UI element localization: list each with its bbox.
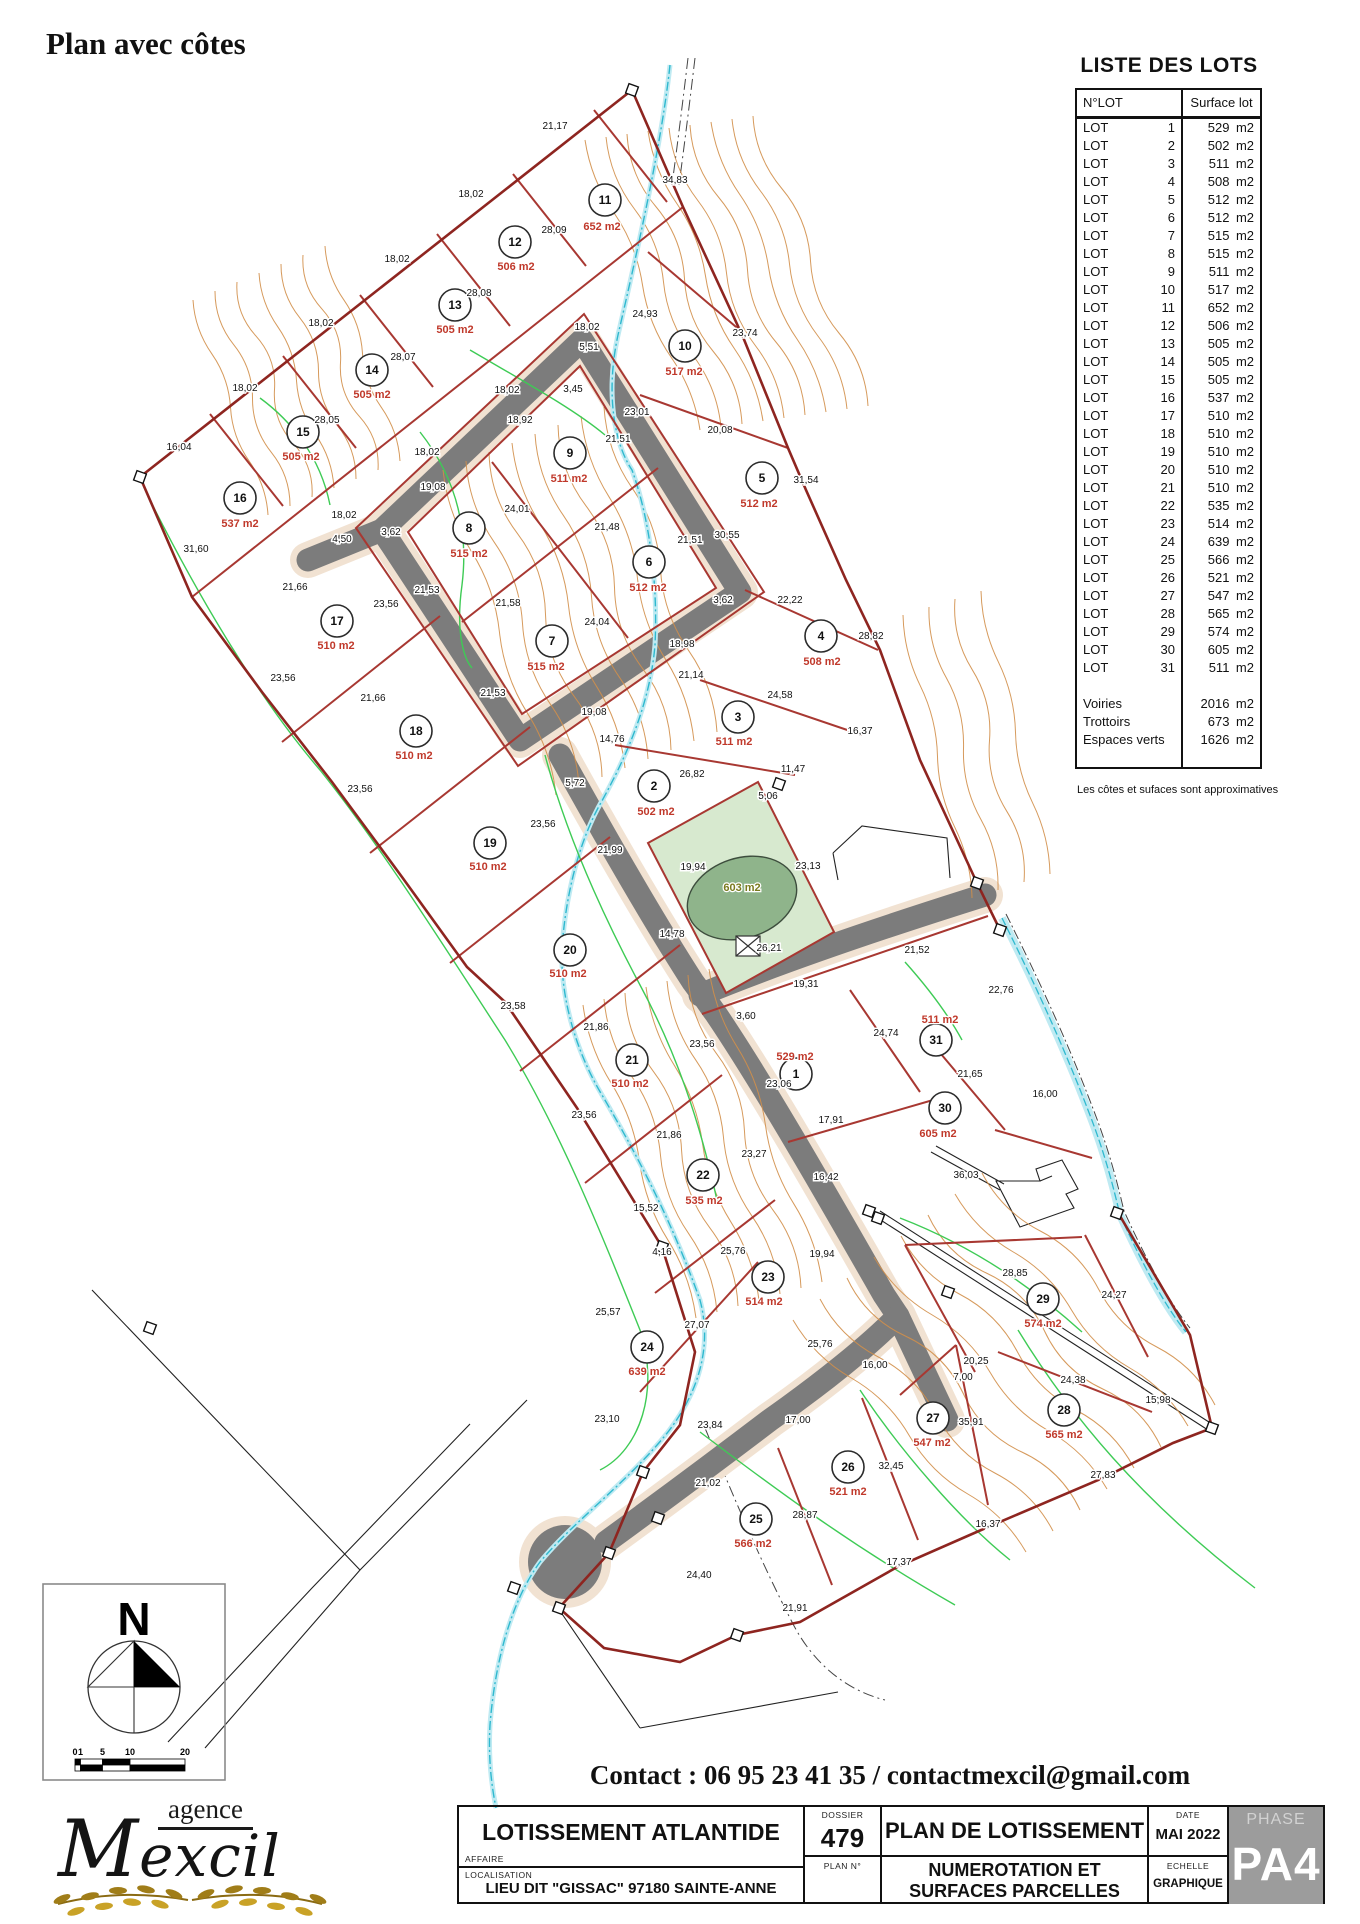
- dimension-label: 23,10: [594, 1414, 619, 1425]
- dimension-label: 34,83: [662, 175, 687, 186]
- dimension-label: 25,76: [807, 1339, 832, 1350]
- table-row: LOT8515 m2: [1076, 245, 1261, 263]
- dimension-label: 24,27: [1101, 1290, 1126, 1301]
- dimension-label: 4,16: [652, 1247, 672, 1258]
- dimension-label: 16,00: [862, 1360, 887, 1371]
- lot-marker: 22535 m2: [685, 1159, 722, 1207]
- contour-line: [982, 1173, 1215, 1405]
- dimension-label: 16,00: [1032, 1089, 1057, 1100]
- dimension-label: 3,60: [736, 1011, 756, 1022]
- dimension-label: 24,93: [632, 309, 657, 320]
- dimension-label: 21,86: [583, 1022, 608, 1033]
- dimension-label: 27,07: [684, 1320, 709, 1331]
- dimension-label: 5,51: [579, 342, 599, 353]
- lot-area-label: 506 m2: [497, 261, 534, 273]
- dimension-label: 21,51: [605, 434, 630, 445]
- lots-table-title: LISTE DES LOTS: [1075, 54, 1263, 78]
- affaire-label: AFFAIRE: [465, 1854, 504, 1864]
- contour-line: [325, 246, 400, 461]
- lot-number: 29: [1036, 1292, 1050, 1306]
- lot-marker: 16537 m2: [221, 482, 258, 530]
- dimension-label: 24,74: [873, 1028, 898, 1039]
- lot-number: 11: [599, 193, 612, 207]
- echelle-value: GRAPHIQUE: [1149, 1878, 1227, 1890]
- laurel-leaf: [224, 1884, 243, 1895]
- lot-number: 17: [330, 614, 344, 628]
- lot-area-label: 652 m2: [583, 221, 620, 233]
- lot-number: 14: [365, 363, 379, 377]
- dimension-label: 3,62: [381, 527, 401, 538]
- lot-area-label: 508 m2: [803, 656, 840, 668]
- affaire-value: LOTISSEMENT ATLANTIDE: [459, 1819, 803, 1846]
- lot-area-label: 529 m2: [776, 1051, 813, 1063]
- dimension-label: 19,31: [793, 979, 818, 990]
- dimension-label: 24,40: [686, 1570, 711, 1581]
- lot-area-label: 535 m2: [685, 1195, 722, 1207]
- lot-area-label: 566 m2: [734, 1538, 771, 1550]
- dimension-label: 31,60: [183, 544, 208, 555]
- scale-tick: 1: [78, 1747, 83, 1757]
- dimension-label: 26,21: [756, 943, 781, 954]
- dimension-label: 25,76: [720, 1246, 745, 1257]
- title-block-localisation: LOCALISATION LIEU DIT "GISSAC" 97180 SAI…: [459, 1868, 805, 1904]
- laurel-leaf: [109, 1887, 127, 1894]
- lot-number: 22: [696, 1168, 710, 1182]
- table-row: LOT19510 m2: [1076, 443, 1261, 461]
- dimension-label: 18,02: [494, 385, 519, 396]
- scale-tick: 10: [125, 1747, 135, 1757]
- table-row: LOT20510 m2: [1076, 461, 1261, 479]
- table-row: Trottoirs673 m2: [1076, 713, 1261, 731]
- boundary-marker: [773, 778, 786, 791]
- contour-line: [981, 591, 1050, 874]
- lot-marker: 17510 m2: [317, 605, 354, 652]
- dimension-label: 21,51: [677, 535, 702, 546]
- table-row: LOT4508 m2: [1076, 173, 1261, 191]
- logo-agence: agence: [158, 1794, 253, 1830]
- dimension-label: 4,50: [332, 534, 352, 545]
- lot-marker: 6512 m2: [629, 546, 666, 594]
- lot-area-label: 515 m2: [450, 548, 487, 560]
- agency-logo: Mexcil agence: [40, 1786, 340, 1922]
- lot-marker: 30605 m2: [919, 1092, 961, 1140]
- title-block: LOTISSEMENT ATLANTIDE AFFAIRE LOCALISATI…: [457, 1805, 1325, 1904]
- table-row: LOT31511 m2: [1076, 659, 1261, 677]
- lot-area-label: 505 m2: [436, 324, 473, 336]
- lot-marker: 24639 m2: [628, 1331, 665, 1378]
- lot-marker: 26521 m2: [829, 1451, 866, 1498]
- scale-tick: 20: [180, 1747, 190, 1757]
- table-row: LOT5512 m2: [1076, 191, 1261, 209]
- dimension-label: 16,37: [975, 1519, 1000, 1530]
- lot-area-label: 512 m2: [629, 582, 666, 594]
- lot-marker: 23514 m2: [745, 1261, 784, 1308]
- dimension-label: 18,02: [458, 189, 483, 200]
- dimension-label: 28,09: [541, 225, 566, 236]
- dimension-label: 18,02: [331, 510, 356, 521]
- table-row: LOT6512 m2: [1076, 209, 1261, 227]
- lot-marker: 11652 m2: [583, 184, 621, 233]
- dimension-label: 18,02: [574, 322, 599, 333]
- contact-line: Contact : 06 95 23 41 35 / contactmexcil…: [500, 1760, 1280, 1791]
- table-row: LOT28565 m2: [1076, 605, 1261, 623]
- date-label: DATE: [1149, 1810, 1227, 1820]
- table-row: LOT26521 m2: [1076, 569, 1261, 587]
- dimension-label: 5,72: [565, 778, 585, 789]
- lot-number: 12: [508, 235, 522, 249]
- laurel-leaf: [294, 1905, 313, 1917]
- lot-number: 4: [818, 629, 825, 643]
- dimension-label: 3,62: [713, 595, 733, 606]
- north-compass: N 0151020: [42, 1583, 226, 1781]
- contour-line: [732, 119, 847, 409]
- dimension-label: 35,91: [958, 1417, 983, 1428]
- title-block-plan-title: PLAN DE LOTISSEMENT: [882, 1807, 1149, 1857]
- title-block-subtitle: NUMEROTATION ET SURFACES PARCELLES: [882, 1857, 1149, 1904]
- dimension-label: 21,53: [480, 688, 505, 699]
- dimension-label: 11,47: [781, 764, 806, 775]
- dimension-label: 15,52: [633, 1203, 658, 1214]
- lot-area-label: 505 m2: [353, 389, 390, 401]
- boundary-marker: [731, 1629, 744, 1642]
- col-header-lot: N°LOT: [1076, 89, 1182, 118]
- dimension-label: 21,58: [495, 598, 520, 609]
- lot-area-label: 517 m2: [665, 366, 702, 378]
- dimension-label: 21,91: [782, 1603, 807, 1614]
- table-row: LOT14505 m2: [1076, 353, 1261, 371]
- dimension-label: 23,13: [795, 861, 820, 872]
- lot-area-label: 510 m2: [469, 861, 506, 873]
- dimension-label: 18,98: [669, 639, 694, 650]
- dimension-label: 16,37: [847, 726, 872, 737]
- dimension-label: 23,56: [373, 599, 398, 610]
- dimension-label: 19,08: [420, 482, 445, 493]
- laurel-leaf: [239, 1898, 258, 1907]
- lot-area-label: 512 m2: [740, 498, 777, 510]
- lot-area-label: 574 m2: [1024, 1318, 1061, 1330]
- dimension-label: 16,42: [813, 1172, 838, 1183]
- lot-number: 16: [233, 491, 247, 505]
- dimension-label: 18,02: [414, 447, 439, 458]
- plan-title-value: PLAN DE LOTISSEMENT: [882, 1818, 1147, 1844]
- dimension-label: 36,03: [953, 1170, 978, 1181]
- lot-area-label: 547 m2: [913, 1437, 950, 1449]
- lot-number: 25: [749, 1512, 763, 1526]
- lot-number: 9: [567, 446, 574, 460]
- lot-area-label: 639 m2: [628, 1366, 665, 1378]
- lot-marker: 9511 m2: [551, 437, 588, 485]
- lot-area-label: 515 m2: [527, 661, 564, 673]
- dimension-label: 7,00: [953, 1372, 973, 1383]
- boundary-marker: [144, 1322, 157, 1335]
- scale-tick: 5: [100, 1747, 105, 1757]
- dimension-label: 23,56: [270, 673, 295, 684]
- dimension-label: 28,05: [314, 415, 339, 426]
- lot-number: 20: [563, 943, 577, 957]
- lot-number: 27: [926, 1411, 940, 1425]
- table-row: LOT2502 m2: [1076, 137, 1261, 155]
- table-row: LOT12506 m2: [1076, 317, 1261, 335]
- lot-number: 21: [625, 1053, 639, 1067]
- table-row: LOT27547 m2: [1076, 587, 1261, 605]
- dimension-label: 21,48: [594, 522, 619, 533]
- north-label: N: [117, 1593, 150, 1645]
- table-row: LOT23514 m2: [1076, 515, 1261, 533]
- dimension-label: 32,45: [878, 1461, 903, 1472]
- dimension-label: 19,94: [680, 862, 705, 873]
- dimension-label: 21,02: [695, 1478, 720, 1489]
- dimension-label: 17,91: [818, 1115, 843, 1126]
- lots-table: N°LOT Surface lot LOT1529 m2LOT2502 m2LO…: [1075, 88, 1262, 769]
- dimension-label: 28,87: [792, 1510, 817, 1521]
- table-row: LOT25566 m2: [1076, 551, 1261, 569]
- contour-line: [711, 122, 826, 412]
- lot-marker: 29574 m2: [1024, 1283, 1061, 1330]
- laurel-leaf: [150, 1898, 169, 1910]
- subtitle-line1: NUMEROTATION ET: [928, 1860, 1100, 1880]
- dimension-label: 16,04: [166, 442, 191, 453]
- table-row: LOT21510 m2: [1076, 479, 1261, 497]
- lot-markers: 1529 m22502 m23511 m24508 m25512 m26512 …: [221, 184, 1082, 1550]
- lot-marker: 12506 m2: [497, 226, 534, 273]
- lot-marker: 14505 m2: [353, 354, 390, 401]
- dimension-label: 19,08: [581, 707, 606, 718]
- dimension-label: 5,06: [758, 791, 778, 802]
- table-row: LOT18510 m2: [1076, 425, 1261, 443]
- dimension-label: 21,14: [678, 670, 703, 681]
- plan-page: Plan avec côtes: [0, 0, 1360, 1924]
- contour-line: [281, 264, 356, 479]
- dimension-label: 27,83: [1090, 1470, 1115, 1481]
- dimension-label: 15,98: [1145, 1395, 1170, 1406]
- lot-number: 13: [448, 298, 462, 312]
- lot-area-label: 514 m2: [745, 1296, 782, 1308]
- lot-number: 15: [296, 425, 310, 439]
- lot-area-label: 505 m2: [282, 451, 319, 463]
- lot-marker: 18510 m2: [395, 715, 432, 762]
- lot-marker: 19510 m2: [469, 827, 506, 873]
- lot-area-label: 511 m2: [716, 736, 753, 748]
- lot-number: 30: [938, 1101, 952, 1115]
- dimension-label: 28,07: [390, 352, 415, 363]
- dimension-label: 23,58: [500, 1001, 525, 1012]
- title-block-dossier: DOSSIER 479: [805, 1807, 882, 1857]
- dimension-label: 17,00: [785, 1415, 810, 1426]
- dimension-label: 26,82: [679, 769, 704, 780]
- dimension-label: 3,45: [563, 384, 583, 395]
- dimension-label: 21,66: [282, 582, 307, 593]
- lot-number: 6: [646, 555, 653, 569]
- dimension-label: 23,56: [689, 1039, 714, 1050]
- table-row: [1076, 749, 1261, 768]
- laurel-leaf: [95, 1902, 114, 1911]
- table-row: Voiries2016 m2: [1076, 695, 1261, 713]
- laurel-leaf: [123, 1898, 142, 1907]
- dimension-label: 28,85: [1002, 1268, 1027, 1279]
- dimension-label: 21,53: [414, 585, 439, 596]
- dimension-label: 18,92: [507, 415, 532, 426]
- table-row: LOT30605 m2: [1076, 641, 1261, 659]
- subtitle-line2: SURFACES PARCELLES: [909, 1881, 1120, 1901]
- dimension-label: 20,08: [707, 425, 732, 436]
- dimension-label: 22,22: [777, 595, 802, 606]
- dimension-label: 17,37: [886, 1557, 911, 1568]
- lot-number: 2: [651, 779, 658, 793]
- dimension-label: 31,54: [793, 475, 818, 486]
- lot-area-label: 511 m2: [551, 473, 588, 485]
- dimension-label: 20,25: [963, 1356, 988, 1367]
- date-value: MAI 2022: [1149, 1826, 1227, 1843]
- dimension-label: 14,76: [599, 734, 624, 745]
- table-row: LOT24639 m2: [1076, 533, 1261, 551]
- contour-line: [955, 1194, 1188, 1426]
- dimension-label: 24,04: [584, 617, 609, 628]
- dimension-label: 24,58: [767, 690, 792, 701]
- table-row: [1076, 677, 1261, 695]
- lot-number: 28: [1057, 1403, 1071, 1417]
- dimension-label: 21,17: [542, 121, 567, 132]
- title-block-echelle: ECHELLE GRAPHIQUE: [1149, 1857, 1229, 1904]
- lot-area-label: 521 m2: [829, 1486, 866, 1498]
- lot-number: 31: [929, 1033, 943, 1047]
- dimension-label: 28,08: [466, 288, 491, 299]
- laurel-leaf: [66, 1905, 85, 1917]
- table-row: LOT16537 m2: [1076, 389, 1261, 407]
- col-header-surface: Surface lot: [1182, 89, 1261, 118]
- table-row: LOT11652 m2: [1076, 299, 1261, 317]
- dimension-label: 28,82: [858, 631, 883, 642]
- dimension-label: 24,01: [504, 504, 529, 515]
- phase-label: PHASE: [1229, 1811, 1323, 1829]
- lot-number: 18: [409, 724, 423, 738]
- dimension-label: 23,01: [624, 407, 649, 418]
- dimension-label: 18,02: [384, 254, 409, 265]
- laurel-branches-icon: [40, 1874, 340, 1922]
- contour-line: [193, 300, 268, 515]
- dimension-label: 25,57: [595, 1307, 620, 1318]
- contour-line: [215, 291, 290, 506]
- lot-marker: 27547 m2: [913, 1402, 950, 1449]
- lot-marker: 3511 m2: [716, 701, 754, 748]
- dimension-label: 21,99: [597, 845, 622, 856]
- dimension-label: 23,06: [766, 1079, 791, 1090]
- table-row: LOT17510 m2: [1076, 407, 1261, 425]
- dimension-label: 22,76: [988, 985, 1013, 996]
- echelle-label: ECHELLE: [1149, 1861, 1227, 1871]
- lot-marker: 20510 m2: [549, 934, 586, 980]
- laurel-leaf: [136, 1884, 155, 1895]
- lot-area-label: 537 m2: [221, 518, 258, 530]
- title-block-date: DATE MAI 2022: [1149, 1807, 1229, 1857]
- lot-number: 1: [793, 1067, 800, 1081]
- table-note: Les côtes et sufaces sont approximatives: [1077, 784, 1278, 796]
- dimension-label: 19,94: [809, 1249, 834, 1260]
- localisation-value: LIEU DIT "GISSAC" 97180 SAINTE-ANNE: [459, 1880, 803, 1897]
- laurel-leaf: [80, 1891, 99, 1902]
- existing-house: [996, 1160, 1078, 1227]
- table-row: LOT22535 m2: [1076, 497, 1261, 515]
- dimension-label: 21,65: [957, 1069, 982, 1080]
- title-block-affaire: LOTISSEMENT ATLANTIDE AFFAIRE: [459, 1807, 805, 1868]
- localisation-label: LOCALISATION: [465, 1870, 532, 1880]
- laurel-leaf: [267, 1902, 286, 1911]
- lot-number: 3: [735, 710, 742, 724]
- lot-marker: 10517 m2: [665, 330, 702, 378]
- phase-value: PA4: [1229, 1837, 1323, 1891]
- dimension-label: 21,86: [656, 1130, 681, 1141]
- lot-marker: 2502 m2: [637, 770, 674, 818]
- lot-marker: 7515 m2: [527, 625, 568, 673]
- dimension-label: 23,74: [732, 328, 757, 339]
- lot-area-label: 605 m2: [919, 1128, 956, 1140]
- table-row: LOT29574 m2: [1076, 623, 1261, 641]
- laurel-leaf: [280, 1891, 299, 1902]
- dimension-label: 18,02: [308, 318, 333, 329]
- dimension-label: 21,66: [360, 693, 385, 704]
- lot-number: 8: [466, 521, 473, 535]
- table-row: Espaces verts1626 m2: [1076, 731, 1261, 749]
- table-row: LOT13505 m2: [1076, 335, 1261, 353]
- lot-number: 10: [678, 339, 692, 353]
- dimension-label: 21,52: [904, 945, 929, 956]
- lot-number: 24: [640, 1340, 654, 1354]
- dimension-label: 23,56: [530, 819, 555, 830]
- plan-no-label: PLAN N°: [805, 1861, 880, 1871]
- boundary-marker: [942, 1286, 955, 1299]
- title-block-plan-no: PLAN N°: [805, 1857, 882, 1904]
- lot-area-label: 511 m2: [922, 1014, 959, 1026]
- dossier-number: 479: [805, 1823, 880, 1854]
- dimension-label: 23,56: [347, 784, 372, 795]
- table-row: LOT9511 m2: [1076, 263, 1261, 281]
- laurel-leaf: [253, 1887, 271, 1894]
- scale-bar: 0151020: [72, 1747, 190, 1771]
- title-block-phase: PHASE PA4: [1229, 1807, 1323, 1904]
- lot-area-label: 502 m2: [637, 806, 674, 818]
- lot-area-label: 565 m2: [1045, 1429, 1082, 1441]
- boundary-marker: [1206, 1422, 1219, 1435]
- table-row: LOT1529 m2: [1076, 118, 1261, 138]
- dimension-label: 18,02: [232, 383, 257, 394]
- lot-area-label: 510 m2: [395, 750, 432, 762]
- lot-marker: 5512 m2: [740, 462, 778, 510]
- dimension-label: 23,27: [741, 1149, 766, 1160]
- dimension-label: 14,78: [659, 929, 684, 940]
- scale-tick: 0: [72, 1747, 77, 1757]
- lot-area-label: 510 m2: [317, 640, 354, 652]
- lot-marker: 31511 m2: [920, 1014, 958, 1056]
- dossier-label: DOSSIER: [805, 1810, 880, 1820]
- dimension-label: 23,56: [571, 1110, 596, 1121]
- dimension-label: 23,84: [697, 1420, 722, 1431]
- table-row: LOT15505 m2: [1076, 371, 1261, 389]
- lot-number: 23: [761, 1270, 775, 1284]
- lot-marker: 8515 m2: [450, 512, 487, 560]
- lot-marker: 28565 m2: [1045, 1394, 1082, 1441]
- laurel-leaf: [210, 1898, 229, 1910]
- lot-marker: 4508 m2: [803, 620, 840, 668]
- boundary-marker: [508, 1582, 521, 1595]
- dimension-label: 24,38: [1060, 1375, 1085, 1386]
- table-row: LOT10517 m2: [1076, 281, 1261, 299]
- lot-area-label: 510 m2: [611, 1078, 648, 1090]
- lot-area-label: 510 m2: [549, 968, 586, 980]
- table-row: LOT3511 m2: [1076, 155, 1261, 173]
- green-space-area-label: 603 m2: [723, 882, 760, 894]
- lot-number: 5: [759, 471, 766, 485]
- dimension-label: 30,55: [714, 530, 739, 541]
- lot-number: 26: [841, 1460, 855, 1474]
